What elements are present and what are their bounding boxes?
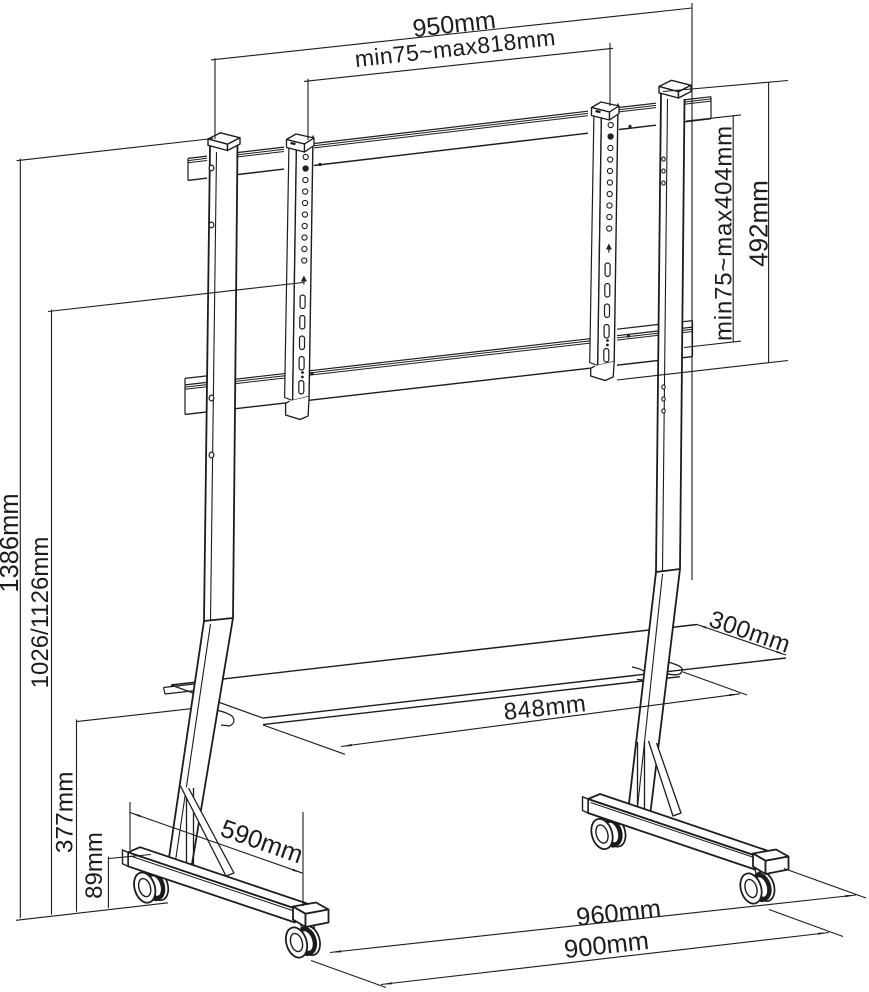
svg-text:1386mm: 1386mm — [0, 493, 24, 592]
svg-text:min75~max404mm: min75~max404mm — [711, 125, 738, 341]
svg-text:89mm: 89mm — [81, 832, 108, 899]
svg-text:377mm: 377mm — [52, 771, 79, 853]
svg-text:492mm: 492mm — [744, 180, 774, 267]
svg-text:1026/1126mm: 1026/1126mm — [27, 537, 54, 689]
